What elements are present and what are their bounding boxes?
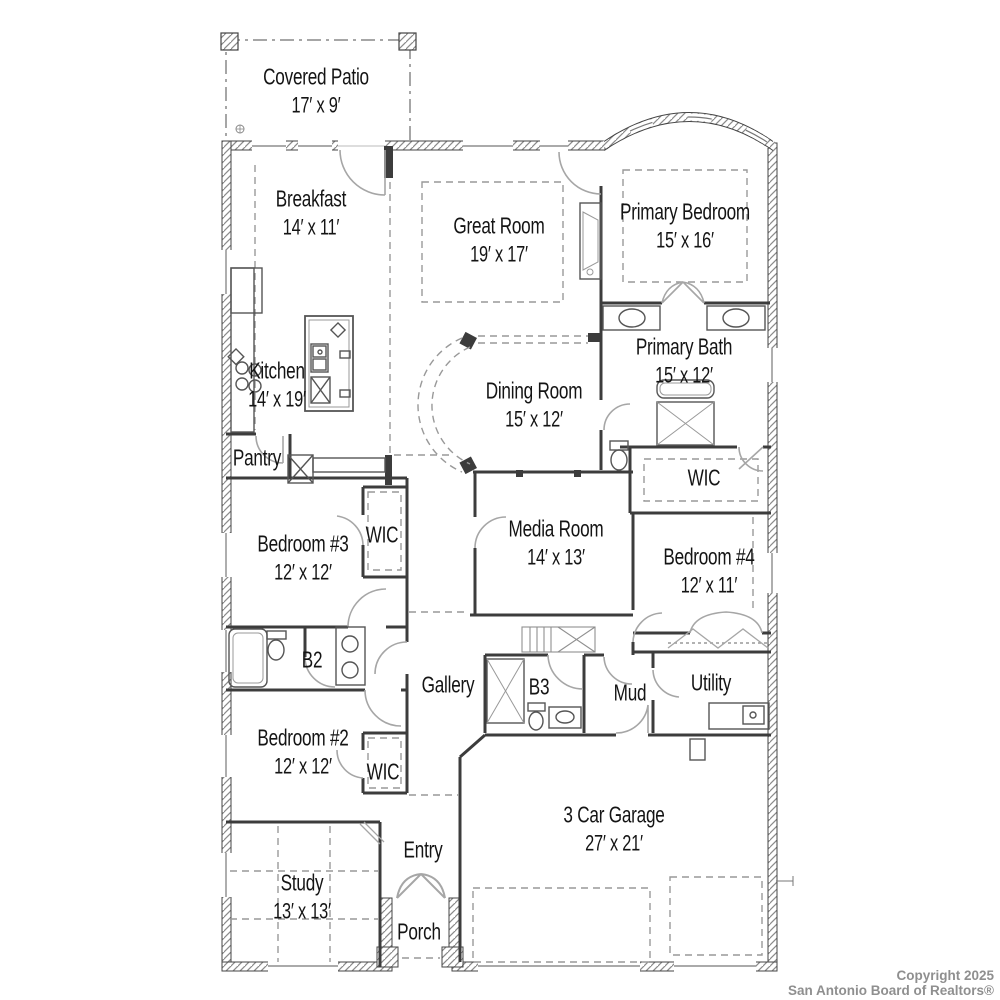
bedroom4-door — [633, 613, 662, 642]
floor-plan-drawing — [0, 0, 1000, 1000]
attic-ladder — [522, 627, 595, 652]
room-label-utility: Utility — [685, 668, 737, 697]
floor-plan: Covered Patio17′ x 9′ Breakfast14′ x 11′… — [0, 0, 1000, 1000]
washer-dryer — [709, 703, 769, 729]
bedroom3-door — [348, 589, 386, 627]
room-label-great-room: Great Room19′ x 17′ — [441, 211, 558, 269]
sink-icon — [342, 662, 358, 678]
primary-bath-door — [604, 404, 630, 430]
copyright-line2: San Antonio Board of Realtors® — [788, 983, 994, 998]
room-label-bath-3: B3 — [526, 672, 552, 701]
room-label-bedroom-3: Bedroom #312′ x 12′ — [245, 529, 362, 587]
dining-bay-arc-inner — [432, 347, 470, 464]
room-label-primary-bedroom: Primary Bedroom15′ x 16′ — [602, 197, 769, 255]
bedroom4-closet-doors — [690, 612, 762, 633]
pendant-icon — [331, 323, 345, 337]
garage-mud-door — [616, 705, 648, 733]
front-double-door — [397, 874, 445, 898]
sink-icon — [342, 636, 358, 652]
bath3-shower — [487, 659, 524, 723]
room-label-bedroom-4: Bedroom #412′ x 11′ — [651, 542, 768, 600]
copyright-watermark: Copyright 2025 San Antonio Board of Real… — [788, 968, 994, 998]
water-heater — [690, 739, 705, 760]
primary-bedroom-door — [559, 152, 601, 194]
garage-door-double — [473, 888, 650, 962]
bath2-tub — [229, 629, 267, 687]
room-label-pantry: Pantry — [226, 443, 288, 472]
bath3-door — [548, 655, 583, 689]
bath2-door — [375, 642, 407, 674]
room-label-dining-room: Dining Room15′ x 12′ — [472, 376, 596, 434]
room-label-wic-primary: WIC — [683, 463, 725, 492]
dining-opening — [478, 336, 588, 343]
dimension-tick — [776, 876, 793, 886]
bath2-toilet — [267, 631, 286, 660]
room-label-entry: Entry — [398, 835, 448, 864]
primary-suite-double-door — [662, 282, 704, 303]
room-label-kitchen: Kitchen14′ x 19′ — [240, 356, 314, 414]
room-label-covered-patio: Covered Patio17′ x 9′ — [248, 62, 384, 120]
utility-door — [653, 670, 679, 697]
room-label-porch: Porch — [391, 917, 447, 946]
wic-primary-door — [739, 447, 763, 471]
room-label-wic-bedroom-2: WIC — [362, 757, 404, 786]
fireplace — [580, 203, 601, 279]
refrigerator — [231, 268, 262, 313]
primary-vanity-left — [603, 306, 660, 330]
room-label-study: Study13′ x 13′ — [265, 868, 339, 926]
bath2-vanity — [336, 627, 365, 685]
bath3-toilet — [528, 703, 545, 730]
butler-counter — [313, 458, 385, 472]
sink-icon — [619, 309, 645, 327]
room-label-media-room: Media Room14′ x 13′ — [495, 514, 617, 572]
copyright-line1: Copyright 2025 — [788, 968, 994, 983]
room-label-mud: Mud — [609, 678, 651, 707]
sink-icon — [556, 711, 574, 723]
room-label-bath-2: B2 — [299, 645, 325, 674]
room-label-bedroom-2: Bedroom #212′ x 12′ — [245, 723, 362, 781]
room-label-gallery: Gallery — [414, 670, 482, 699]
sink-icon — [723, 309, 749, 327]
room-label-primary-bath: Primary Bath15′ x 12′ — [622, 332, 746, 390]
dining-bay-arc-outer — [418, 338, 462, 472]
primary-shower — [657, 402, 714, 445]
bath3-vanity — [549, 707, 581, 728]
bedroom2-door — [365, 690, 401, 726]
garage-door-single — [670, 877, 762, 955]
room-label-garage: 3 Car Garage27′ x 21′ — [549, 800, 679, 858]
room-label-wic-bedroom-3: WIC — [361, 520, 403, 549]
primary-toilet — [610, 441, 628, 470]
primary-vanity-right — [707, 306, 765, 330]
room-label-breakfast: Breakfast14′ x 11′ — [266, 184, 356, 242]
